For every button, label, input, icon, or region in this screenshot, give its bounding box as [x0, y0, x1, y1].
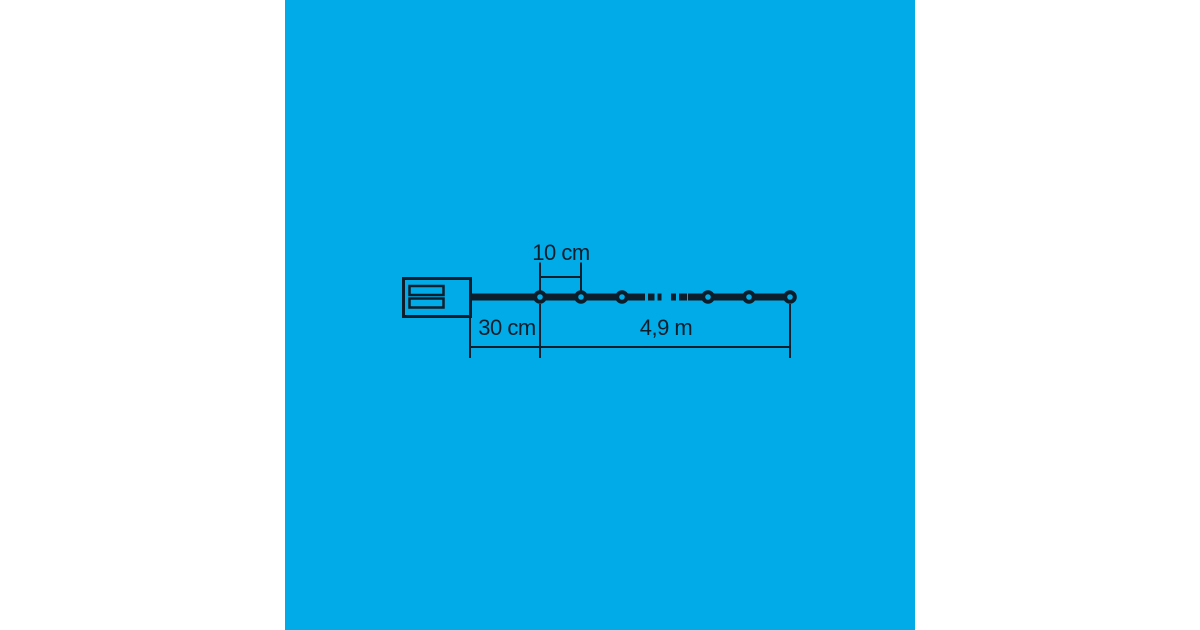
plug-prong-top-icon: [410, 286, 444, 295]
plug-prong-bottom-icon: [410, 299, 444, 308]
bulb-1: [535, 292, 545, 302]
bulb-6: [785, 292, 795, 302]
bulb-spacing-label: 10 cm: [532, 240, 589, 265]
total-length-label: 4,9 m: [640, 315, 693, 340]
bulb-5: [744, 292, 754, 302]
page-background: 10 cm 30 cm 4,9 m: [0, 0, 1200, 630]
bulb-3: [617, 292, 627, 302]
bulb-2: [576, 292, 586, 302]
lead-length-label: 30 cm: [478, 315, 535, 340]
power-plug-box: [404, 279, 471, 317]
product-diagram-canvas: 10 cm 30 cm 4,9 m: [285, 0, 915, 630]
length-dimensions: 30 cm 4,9 m: [470, 304, 790, 358]
bulb-spacing-dimension: 10 cm: [532, 240, 589, 291]
bulb-4: [703, 292, 713, 302]
light-chain-dimension-diagram: 10 cm 30 cm 4,9 m: [285, 0, 915, 630]
